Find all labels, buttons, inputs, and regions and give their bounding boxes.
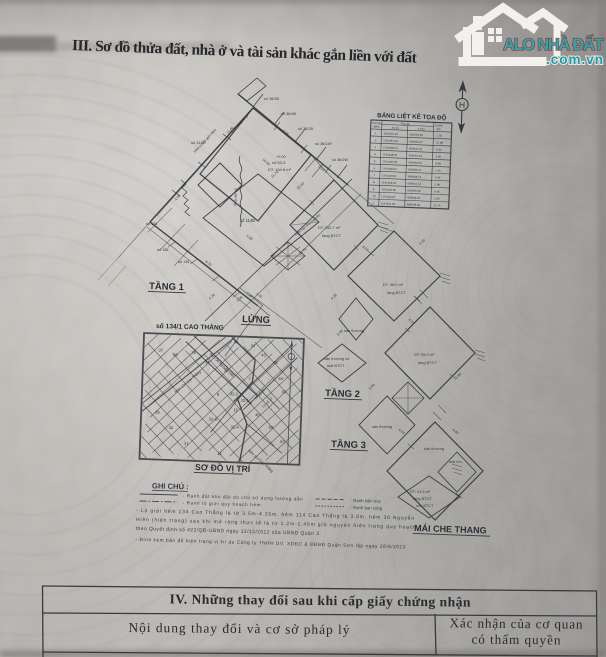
svg-text:32-1: 32-1 [241, 398, 250, 403]
svg-text:mái BTCT: mái BTCT [416, 503, 434, 508]
svg-text:Xác nhận của cơ quan: Xác nhận của cơ quan [449, 615, 583, 631]
svg-text:Y (m): Y (m) [418, 127, 425, 131]
svg-text:số 138: số 138 [178, 260, 189, 264]
svg-text:số 36/4B: số 36/4B [281, 112, 296, 116]
svg-text:1191440.02: 1191440.02 [382, 166, 397, 171]
svg-text:sân thượng: sân thượng [344, 328, 364, 333]
svg-text:số 36/3B: số 36/3B [264, 97, 279, 101]
svg-text:DT: 95.0 m²: DT: 95.0 m² [414, 352, 435, 357]
svg-text:604936.46: 604936.46 [407, 188, 421, 193]
svg-text:1191429.05: 1191429.05 [381, 187, 396, 192]
svg-text:LỬNG: LỬNG [242, 313, 270, 326]
svg-text:32-5: 32-5 [209, 416, 218, 421]
svg-text:- Ranh kiến trúc: - Ranh kiến trúc [351, 498, 382, 504]
svg-text:2.30: 2.30 [436, 133, 442, 137]
svg-text:2.99: 2.99 [434, 196, 440, 200]
svg-text:có thẩm quyền: có thẩm quyền [471, 632, 561, 648]
svg-text:604941.74: 604941.74 [408, 181, 422, 186]
svg-text:604948.02: 604948.02 [407, 195, 421, 200]
svg-text:số 03-3: số 03-3 [272, 160, 286, 165]
svg-text:tầng BTCT: tầng BTCT [418, 360, 437, 365]
svg-text:số 114Đ: số 114Đ [240, 218, 255, 223]
svg-text:IV. Những thay đổi sau khi cấp: IV. Những thay đổi sau khi cấp giấy chứn… [169, 591, 471, 609]
svg-text:604938.48: 604938.48 [407, 202, 421, 207]
svg-text:604946.31: 604946.31 [408, 167, 422, 172]
svg-text:1.08: 1.08 [434, 182, 440, 186]
svg-text:X (m): X (m) [392, 126, 399, 130]
svg-text:1.46: 1.46 [435, 168, 441, 172]
svg-text:1191428.96: 1191428.96 [382, 180, 397, 185]
svg-text:32-2: 32-2 [230, 391, 239, 396]
svg-text:1191457.04: 1191457.04 [383, 138, 398, 143]
svg-text:604948.14: 604948.14 [408, 174, 422, 179]
svg-text:604938.48: 604938.48 [409, 132, 423, 137]
svg-text:số 128: số 128 [146, 222, 157, 226]
svg-text:DT: 98.0 m²: DT: 98.0 m² [383, 282, 404, 287]
svg-text:1191439.02: 1191439.02 [382, 173, 397, 178]
svg-text:số 136: số 136 [157, 248, 168, 252]
svg-text:tầng BTCT: tầng BTCT [387, 290, 406, 295]
svg-text:DT: 164.8 m²: DT: 164.8 m² [268, 167, 292, 172]
svg-text:604949.22: 604949.22 [409, 139, 423, 144]
svg-text:5.46: 5.46 [435, 175, 441, 179]
svg-text:mái BTCT: mái BTCT [327, 363, 345, 368]
svg-text:5.45: 5.45 [434, 189, 440, 193]
svg-text:H: H [459, 100, 465, 110]
svg-text:604941.51: 604941.51 [409, 146, 423, 151]
svg-text:5.98: 5.98 [435, 161, 441, 165]
svg-text:sân thượng: sân thượng [424, 446, 444, 451]
svg-text:mái tôn: mái tôn [449, 459, 462, 464]
svg-text:- Ranh ban công: - Ranh ban công [350, 505, 383, 511]
svg-text:sân thượng có: sân thượng có [324, 356, 349, 361]
svg-text:số 36/2W: số 36/2W [332, 158, 348, 162]
svg-text:số 36/2AY: số 36/2AY [315, 142, 333, 146]
svg-text:11.88: 11.88 [436, 140, 443, 144]
svg-text:1191445.05: 1191445.05 [382, 159, 397, 164]
svg-text:1191448.69: 1191448.69 [383, 152, 398, 157]
svg-text:tầng BTCT: tầng BTCT [413, 496, 432, 501]
svg-text:604938.50: 604938.50 [408, 160, 422, 165]
svg-text:1191443.87: 1191443.87 [381, 194, 396, 199]
svg-text:1191451.81: 1191451.81 [381, 201, 396, 206]
svg-text:+0.00: +0.00 [276, 155, 286, 159]
svg-text:số 36/2B: số 36/2B [298, 127, 313, 131]
svg-text:.com.vn: .com.vn [546, 52, 603, 67]
svg-text:sân thượng: sân thượng [372, 424, 392, 429]
svg-text:GHI CHÚ :: GHI CHÚ : [152, 481, 189, 491]
svg-text:Tọa độ: Tọa độ [401, 122, 410, 126]
svg-text:DT: 152.7 m²: DT: 152.7 m² [318, 225, 341, 230]
svg-text:1191448.23: 1191448.23 [383, 145, 398, 150]
svg-text:604951.63: 604951.63 [409, 153, 423, 158]
svg-text:tầng BTCT: tầng BTCT [322, 233, 341, 238]
svg-text:DT: 41.5 m²: DT: 41.5 m² [410, 489, 431, 494]
svg-text:11.76: 11.76 [434, 203, 441, 207]
svg-text:32-4: 32-4 [231, 424, 240, 429]
svg-text:dài: dài [437, 127, 441, 131]
svg-text:5.30: 5.30 [436, 147, 442, 151]
svg-text:Nội dung thay đổi và cơ sở phá: Nội dung thay đổi và cơ sở pháp lý [128, 620, 349, 637]
svg-text:5.06: 5.06 [436, 154, 442, 158]
svg-text:điểm: điểm [373, 125, 380, 129]
svg-text:1191451.81: 1191451.81 [383, 131, 398, 136]
